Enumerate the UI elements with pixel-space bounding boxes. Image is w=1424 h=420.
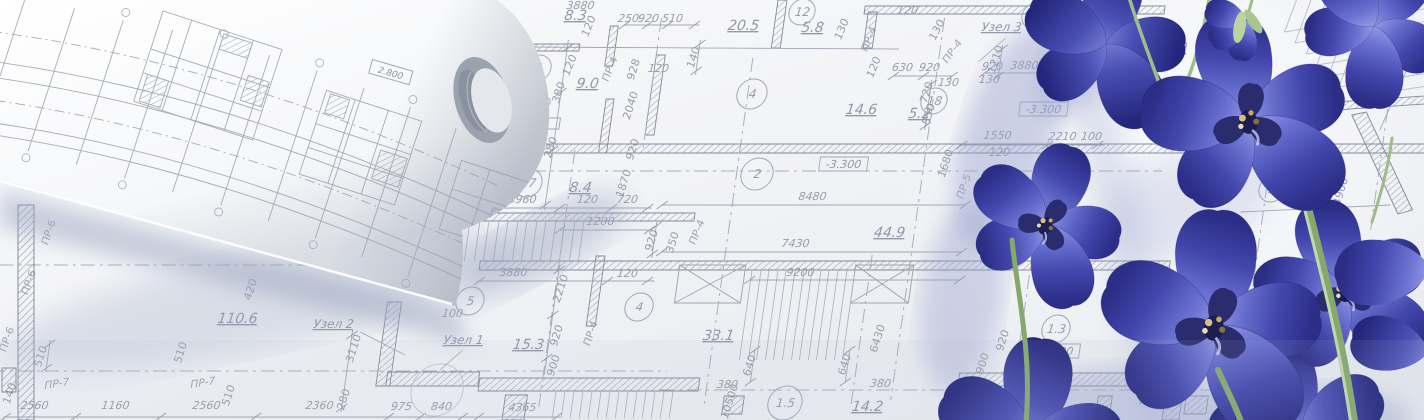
dimension-label: 120 [896, 4, 919, 17]
area-label: 8.3 [563, 8, 588, 24]
area-label: 5.2 [907, 106, 932, 122]
dimension-label: 920 [637, 12, 660, 25]
dimension-label: 7430 [781, 237, 811, 250]
axis-bubble-label: 18 [926, 94, 944, 108]
bottom-vignette [0, 340, 1424, 420]
level-mark: -3.300 [825, 158, 862, 171]
axis-bubble-label: 12 [794, 5, 811, 19]
area-label: 20.5 [727, 18, 760, 34]
dimension-label: 120 [616, 267, 639, 280]
blueprint-flowers-banner: 3880250920510120928120140204060380120280… [0, 0, 1424, 420]
area-label: 14.6 [845, 102, 878, 118]
node-label: Узел 3 [981, 20, 1023, 34]
dimension-label: 8480 [798, 190, 828, 203]
banner-canvas: 3880250920510120928120140204060380120280… [0, 0, 1424, 420]
dimension-label: 9200 [786, 266, 816, 279]
area-label: 44.9 [873, 225, 906, 241]
dimension-label: 120 [647, 62, 670, 75]
area-label: 9.0 [575, 76, 600, 92]
dimension-label: 510 [661, 12, 684, 25]
area-label: 8.4 [568, 180, 592, 196]
dimension-label: 630 [891, 61, 914, 74]
axis-bubble-label: 1.3 [1046, 322, 1067, 336]
dimension-label: 920 [918, 61, 941, 74]
dimension-label: 130 [937, 76, 960, 89]
area-label: 5.8 [800, 20, 825, 36]
